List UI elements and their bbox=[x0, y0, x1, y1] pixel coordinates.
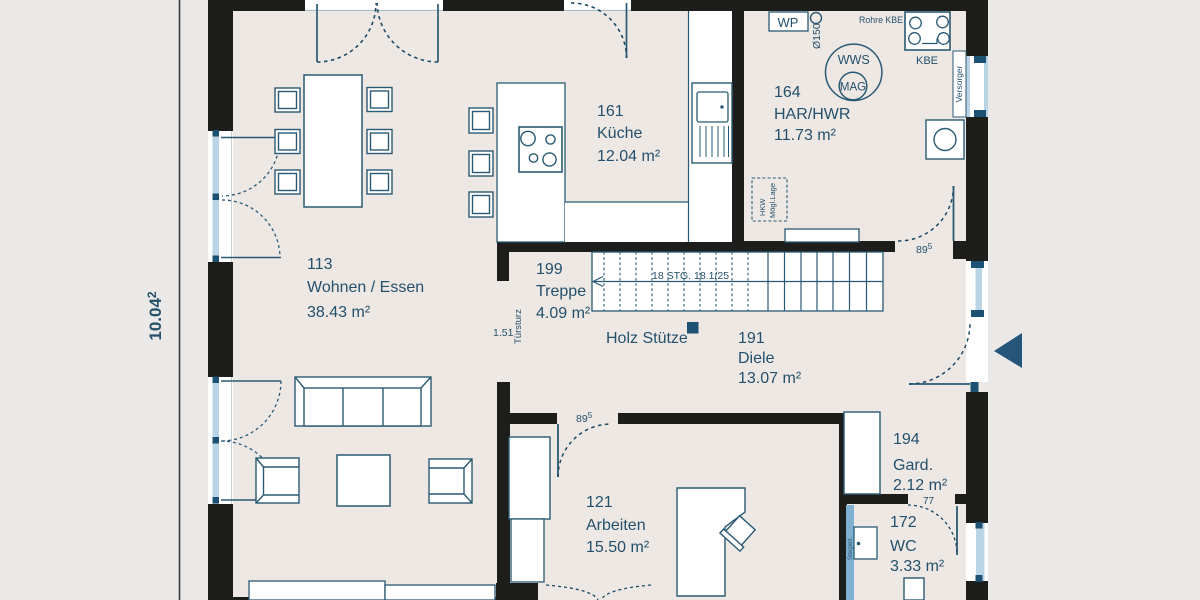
svg-text:13.07 m²: 13.07 m² bbox=[738, 370, 802, 387]
svg-text:4.09 m²: 4.09 m² bbox=[536, 305, 591, 322]
svg-text:15.50 m²: 15.50 m² bbox=[586, 539, 650, 556]
svg-text:194: 194 bbox=[893, 431, 920, 448]
svg-text:3.33 m²: 3.33 m² bbox=[890, 558, 945, 575]
svg-text:Arbeiten: Arbeiten bbox=[586, 517, 646, 534]
svg-text:12.04 m²: 12.04 m² bbox=[597, 148, 661, 165]
svg-text:HKW: HKW bbox=[758, 198, 767, 216]
svg-text:1.51: 1.51 bbox=[493, 327, 514, 339]
svg-text:38.43 m²: 38.43 m² bbox=[307, 304, 371, 321]
svg-text:199: 199 bbox=[536, 261, 563, 278]
svg-text:191: 191 bbox=[738, 330, 765, 347]
svg-text:10.042: 10.042 bbox=[145, 291, 165, 341]
svg-text:WC: WC bbox=[890, 538, 917, 555]
svg-text:18 STG. 18.1/25: 18 STG. 18.1/25 bbox=[652, 270, 729, 282]
svg-text:Diele: Diele bbox=[738, 350, 775, 367]
svg-text:Steigleit.: Steigleit. bbox=[848, 537, 854, 560]
svg-text:164: 164 bbox=[774, 84, 801, 101]
svg-text:11.73 m²: 11.73 m² bbox=[774, 127, 837, 144]
svg-text:172: 172 bbox=[890, 514, 917, 531]
svg-text:Gard.: Gard. bbox=[893, 457, 933, 474]
svg-text:Rohre KBE: Rohre KBE bbox=[859, 15, 903, 25]
svg-text:Türsturz: Türsturz bbox=[513, 309, 524, 344]
svg-text:HAR/HWR: HAR/HWR bbox=[774, 106, 850, 123]
svg-text:Küche: Küche bbox=[597, 125, 642, 142]
svg-text:KBE: KBE bbox=[916, 55, 938, 67]
svg-text:Wohnen / Essen: Wohnen / Essen bbox=[307, 279, 424, 296]
svg-text:WP: WP bbox=[778, 15, 799, 30]
svg-text:2.12 m²: 2.12 m² bbox=[893, 477, 948, 494]
svg-text:161: 161 bbox=[597, 103, 624, 120]
svg-text:MAG: MAG bbox=[840, 82, 866, 94]
svg-text:WWS: WWS bbox=[838, 53, 870, 67]
svg-text:121: 121 bbox=[586, 494, 613, 511]
svg-text:Versorger: Versorger bbox=[954, 65, 964, 102]
svg-text:77: 77 bbox=[923, 496, 935, 507]
svg-text:Ø150: Ø150 bbox=[811, 23, 823, 49]
svg-text:Mögl.Lage: Mögl.Lage bbox=[768, 183, 777, 218]
svg-text:Treppe: Treppe bbox=[536, 283, 586, 300]
svg-text:Holz Stütze: Holz Stütze bbox=[606, 330, 688, 347]
svg-text:113: 113 bbox=[307, 256, 333, 273]
